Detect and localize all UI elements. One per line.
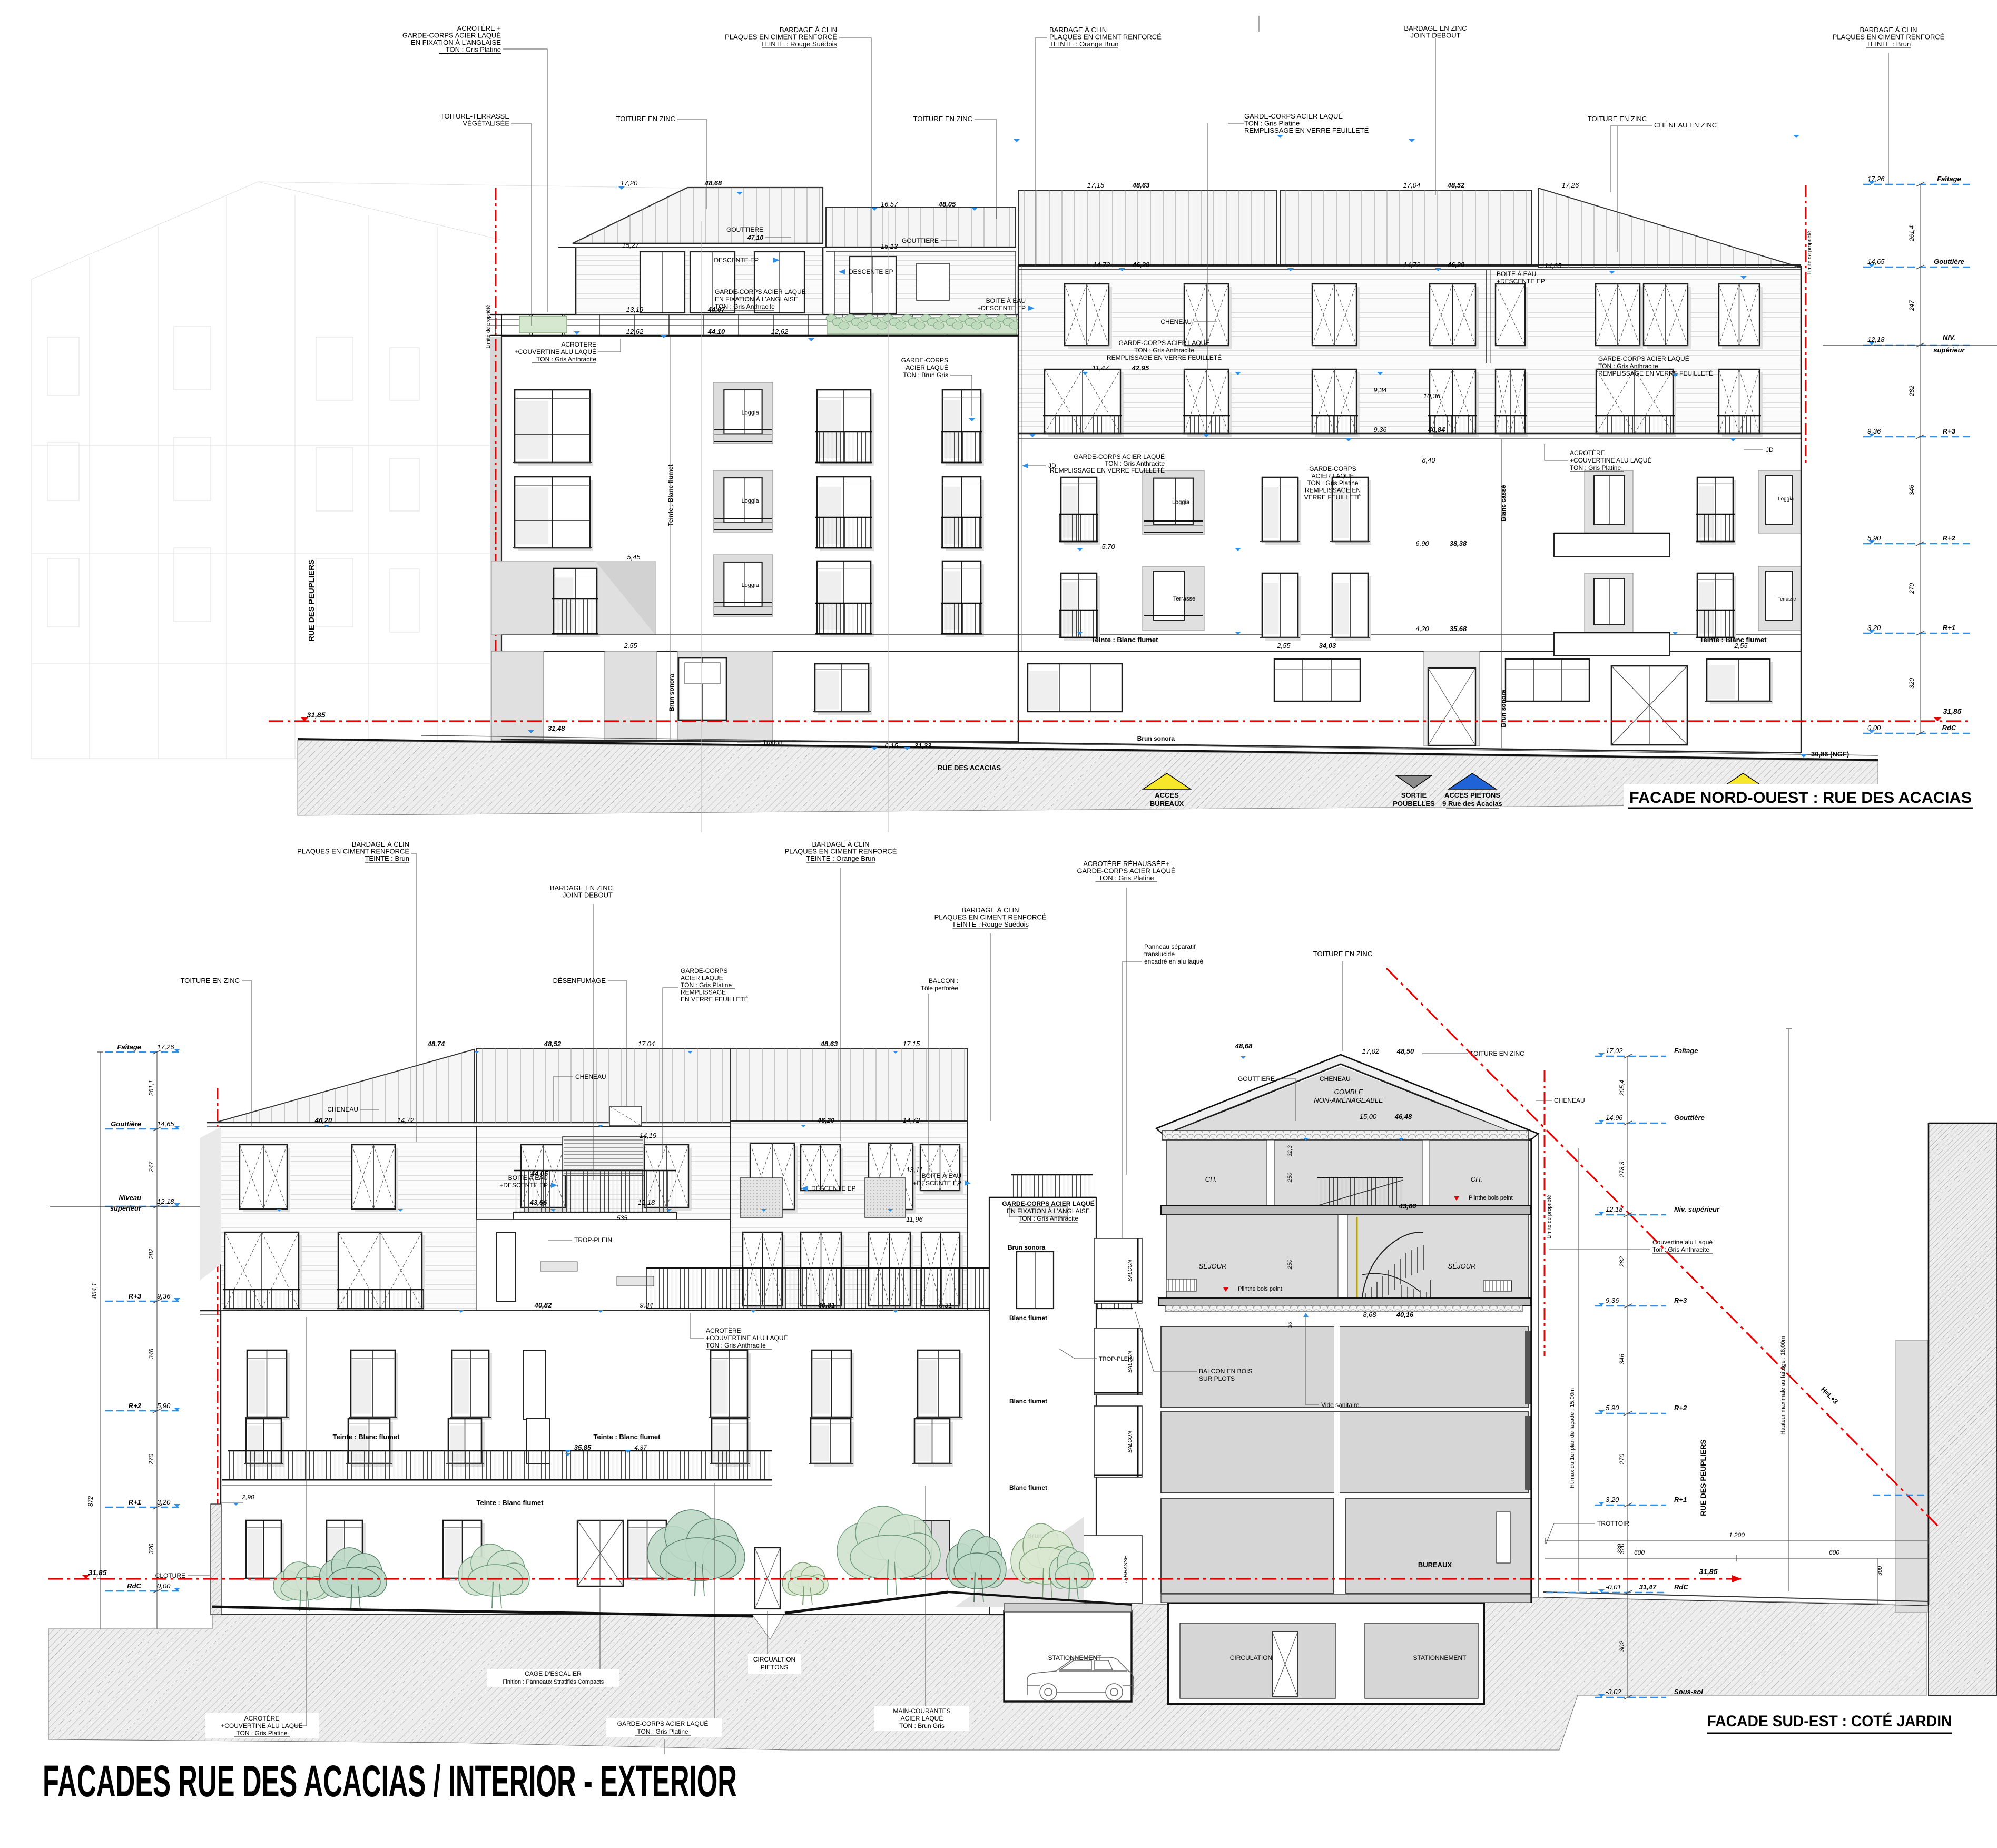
svg-text:247: 247 — [147, 1161, 155, 1173]
svg-text:R+2: R+2 — [129, 1402, 142, 1410]
svg-text:3,20: 3,20 — [1606, 1496, 1619, 1503]
svg-text:CH.: CH. — [1205, 1175, 1217, 1183]
svg-text:11,47: 11,47 — [1092, 364, 1109, 372]
svg-text:261,1: 261,1 — [147, 1080, 155, 1096]
svg-text:48,05: 48,05 — [938, 200, 956, 208]
svg-text:TOITURE EN ZINC: TOITURE EN ZINC — [1313, 950, 1372, 958]
svg-text:44,67: 44,67 — [707, 306, 725, 313]
svg-text:Blanc flumet: Blanc flumet — [1009, 1484, 1047, 1491]
svg-text:10,36: 10,36 — [1423, 392, 1441, 400]
svg-text:TON : Brun Gris: TON : Brun Gris — [899, 1722, 945, 1729]
svg-text:282: 282 — [1908, 386, 1915, 397]
svg-text:ACIER LAQUÉ: ACIER LAQUÉ — [901, 1714, 943, 1722]
svg-text:9,36: 9,36 — [157, 1292, 171, 1300]
svg-text:R+3: R+3 — [129, 1292, 142, 1300]
svg-text:R+3: R+3 — [1943, 427, 1956, 435]
svg-text:Faîtage: Faîtage — [1674, 1047, 1698, 1055]
svg-text:CAGE D'ESCALIER: CAGE D'ESCALIER — [525, 1670, 582, 1677]
svg-text:48,68: 48,68 — [1235, 1042, 1253, 1050]
svg-text:R+2: R+2 — [1943, 534, 1956, 542]
svg-text:12,18: 12,18 — [638, 1198, 655, 1206]
svg-text:R+2: R+2 — [1674, 1404, 1687, 1412]
svg-text:R+1: R+1 — [1943, 624, 1955, 632]
svg-text:DÉSENFUMAGE: DÉSENFUMAGE — [553, 977, 606, 985]
svg-text:31,47: 31,47 — [1639, 1583, 1657, 1591]
svg-text:TEINTE : Brun: TEINTE : Brun — [365, 854, 409, 862]
svg-text:REMPLISSAGE EN VERRE FEUILLETÉ: REMPLISSAGE EN VERRE FEUILLETÉ — [1107, 353, 1222, 361]
svg-text:Trottoir: Trottoir — [763, 739, 783, 746]
svg-text:Blanc cassé: Blanc cassé — [1500, 485, 1507, 522]
svg-text:BUREAUX: BUREAUX — [1150, 800, 1184, 808]
svg-text:-0,15: -0,15 — [882, 742, 898, 750]
svg-text:31,48: 31,48 — [548, 724, 565, 732]
svg-text:15,00: 15,00 — [1360, 1113, 1377, 1120]
svg-text:BALCON: BALCON — [1127, 1260, 1133, 1282]
svg-text:+DESCENTE EP: +DESCENTE EP — [977, 304, 1026, 312]
svg-text:R+1: R+1 — [1674, 1496, 1687, 1503]
svg-text:GARDE-CORPS ACIER LAQUÉ: GARDE-CORPS ACIER LAQUÉ — [617, 1719, 709, 1727]
svg-text:48,68: 48,68 — [704, 179, 722, 187]
svg-text:EN FIXATION À L’ANGLAISE: EN FIXATION À L’ANGLAISE — [1007, 1207, 1090, 1215]
svg-text:TEINTE : Rouge Suédois: TEINTE : Rouge Suédois — [760, 40, 837, 48]
svg-text:TON : Gris Platine: TON : Gris Platine — [446, 46, 501, 54]
svg-text:+DESCENTE EP: +DESCENTE EP — [913, 1179, 961, 1187]
svg-text:35,68: 35,68 — [1450, 625, 1467, 633]
svg-text:R+3: R+3 — [1674, 1296, 1687, 1304]
svg-text:302: 302 — [1618, 1641, 1626, 1652]
svg-text:GARDE-CORPS ACIER LAQUÉ: GARDE-CORPS ACIER LAQUÉ — [1598, 355, 1689, 362]
svg-text:TON : Gris Anthracite: TON : Gris Anthracite — [1134, 347, 1194, 354]
svg-text:GOUTTIERE: GOUTTIERE — [902, 237, 939, 244]
svg-text:Loggia: Loggia — [742, 582, 760, 588]
svg-text:TON : Gris Anthracite: TON : Gris Anthracite — [706, 1342, 766, 1349]
svg-text:Plinthe bois peint: Plinthe bois peint — [1238, 1286, 1282, 1292]
svg-text:32,3: 32,3 — [1287, 1145, 1293, 1156]
svg-text:600: 600 — [1829, 1549, 1839, 1556]
svg-text:5,90: 5,90 — [1606, 1404, 1619, 1412]
svg-text:CHENEAU: CHENEAU — [1160, 318, 1192, 326]
svg-text:GARDE-CORPS ACIER LAQUÉ: GARDE-CORPS ACIER LAQUÉ — [1119, 339, 1210, 347]
svg-text:CHENEAU: CHENEAU — [575, 1073, 606, 1080]
svg-text:GARDE-CORPS: GARDE-CORPS — [901, 357, 948, 364]
svg-text:Couvertine alu Laqué: Couvertine alu Laqué — [1652, 1238, 1713, 1246]
svg-text:TROTTOIR: TROTTOIR — [1597, 1520, 1629, 1527]
svg-text:17,20: 17,20 — [621, 179, 638, 187]
svg-text:Limite de propriété: Limite de propriété — [1807, 231, 1813, 274]
svg-text:31,33: 31,33 — [914, 742, 932, 750]
svg-text:4,20: 4,20 — [1415, 625, 1429, 633]
svg-text:535: 535 — [617, 1214, 627, 1222]
svg-text:CIRCULATION: CIRCULATION — [1230, 1654, 1272, 1662]
svg-text:46,48: 46,48 — [1394, 1113, 1412, 1120]
svg-text:278,3: 278,3 — [1618, 1162, 1626, 1178]
svg-text:270: 270 — [147, 1454, 155, 1465]
svg-text:Teinte : Blanc flumet: Teinte : Blanc flumet — [1700, 636, 1767, 644]
svg-text:Teinte : Blanc flumet: Teinte : Blanc flumet — [1091, 636, 1159, 644]
svg-text:36: 36 — [1287, 1322, 1293, 1328]
svg-text:46,20: 46,20 — [1447, 261, 1465, 269]
svg-text:BOITE À EAU: BOITE À EAU — [1497, 270, 1536, 278]
svg-text:Loggia: Loggia — [742, 498, 760, 504]
svg-text:320: 320 — [147, 1544, 155, 1554]
svg-text:Limite de propriété: Limite de propriété — [486, 304, 491, 348]
svg-text:38,38: 38,38 — [1450, 539, 1467, 547]
svg-text:STATIONNEMENT: STATIONNEMENT — [1413, 1654, 1467, 1662]
svg-text:48,74: 48,74 — [427, 1040, 445, 1048]
svg-text:4,37: 4,37 — [634, 1444, 647, 1451]
svg-text:14,65: 14,65 — [1545, 262, 1562, 270]
svg-text:5,90: 5,90 — [1867, 534, 1881, 542]
svg-text:Finition : Panneaux Stratifiés: Finition : Panneaux Stratifiés Compacts — [503, 1679, 604, 1685]
svg-text:46,20: 46,20 — [1132, 261, 1150, 269]
svg-text:40,84: 40,84 — [1428, 426, 1445, 434]
svg-text:Teinte : Blanc flumet: Teinte : Blanc flumet — [333, 1433, 400, 1441]
svg-text:COMBLE: COMBLE — [1334, 1088, 1363, 1096]
svg-text:872: 872 — [87, 1496, 94, 1507]
svg-text:TON : Gris Platine: TON : Gris Platine — [236, 1729, 287, 1737]
svg-text:RUE DES ACACIAS: RUE DES ACACIAS — [938, 764, 1001, 772]
svg-text:SORTIE: SORTIE — [1401, 791, 1427, 799]
svg-text:Gouttière: Gouttière — [1934, 258, 1964, 266]
svg-text:Gouttière: Gouttière — [111, 1120, 141, 1128]
svg-text:35,85: 35,85 — [574, 1443, 592, 1451]
svg-text:VÉGÉTALISÉE: VÉGÉTALISÉE — [463, 120, 509, 127]
svg-text:FACADES RUE DES ACACIAS / INTE: FACADES RUE DES ACACIAS / INTERIOR - EXT… — [43, 1756, 737, 1806]
svg-text:Teinte : Blanc flumet: Teinte : Blanc flumet — [594, 1433, 661, 1441]
svg-text:5,45: 5,45 — [627, 553, 641, 561]
svg-text:REMPLISSAGE EN VERRE FEUILLETÉ: REMPLISSAGE EN VERRE FEUILLETÉ — [1244, 126, 1369, 134]
svg-text:TEINTE : Orange Brun: TEINTE : Orange Brun — [1049, 40, 1119, 48]
svg-text:17,04: 17,04 — [1403, 181, 1421, 189]
svg-text:NON-AMÉNAGEABLE: NON-AMÉNAGEABLE — [1314, 1096, 1383, 1104]
svg-text:TOITURE EN ZINC: TOITURE EN ZINC — [616, 115, 675, 123]
svg-text:2,90: 2,90 — [241, 1493, 254, 1501]
svg-text:-3,02: -3,02 — [1606, 1688, 1621, 1696]
svg-text:JD: JD — [1048, 462, 1056, 469]
svg-text:supérieur: supérieur — [110, 1204, 142, 1212]
svg-text:TEINTE : Orange Brun: TEINTE : Orange Brun — [806, 854, 875, 862]
svg-text:2,55: 2,55 — [1734, 642, 1748, 650]
svg-text:Loggia: Loggia — [1172, 499, 1190, 505]
svg-text:TON : Gris Anthracite: TON : Gris Anthracite — [1018, 1215, 1078, 1222]
svg-text:2,55: 2,55 — [1276, 642, 1291, 650]
svg-text:320: 320 — [1617, 1544, 1623, 1554]
svg-text:Ton : Gris Anthracite: Ton : Gris Anthracite — [1652, 1246, 1709, 1253]
svg-text:Teinte : Blanc flumet: Teinte : Blanc flumet — [477, 1499, 544, 1507]
svg-text:ACROTERE: ACROTERE — [561, 341, 596, 348]
svg-text:BOITE À EAU: BOITE À EAU — [922, 1172, 961, 1179]
svg-text:17,15: 17,15 — [903, 1040, 920, 1048]
svg-text:12,18: 12,18 — [1867, 336, 1885, 343]
svg-text:GOUTTIERE: GOUTTIERE — [726, 226, 763, 233]
svg-text:CHENEAU: CHENEAU — [327, 1106, 358, 1113]
svg-text:encadré en alu laqué: encadré en alu laqué — [1144, 958, 1203, 965]
svg-text:Gouttière: Gouttière — [1674, 1114, 1705, 1122]
svg-text:600: 600 — [1634, 1549, 1645, 1556]
svg-text:BALCON: BALCON — [1127, 1431, 1133, 1453]
svg-text:JD: JD — [1766, 446, 1774, 454]
svg-text:Vide sanitaire: Vide sanitaire — [1321, 1401, 1360, 1409]
svg-text:346: 346 — [1618, 1354, 1626, 1364]
svg-text:Niveau: Niveau — [119, 1194, 141, 1202]
svg-text:Brun sonora: Brun sonora — [1500, 690, 1507, 728]
svg-text:CIRCUALTION: CIRCUALTION — [753, 1656, 795, 1663]
svg-text:Blanc flumet: Blanc flumet — [1009, 1398, 1047, 1405]
svg-text:250: 250 — [1287, 1172, 1293, 1183]
svg-text:14,96: 14,96 — [1606, 1114, 1623, 1122]
svg-text:Terrasse: Terrasse — [1173, 596, 1195, 602]
svg-text:TON : Gris Platine: TON : Gris Platine — [637, 1728, 688, 1735]
svg-text:DESCENTE EP: DESCENTE EP — [811, 1185, 856, 1192]
svg-text:Limite de propriété: Limite de propriété — [1547, 1195, 1552, 1238]
svg-text:POUBELLES: POUBELLES — [1393, 800, 1435, 808]
svg-text:TON : Gris Anthracite: TON : Gris Anthracite — [1598, 362, 1658, 370]
svg-text:40,82: 40,82 — [534, 1301, 552, 1309]
svg-text:DESCENTE EP: DESCENTE EP — [849, 268, 893, 276]
svg-text:+COUVERTINE ALU LAQUÉ: +COUVERTINE ALU LAQUÉ — [1570, 456, 1652, 464]
svg-text:13,11: 13,11 — [906, 1166, 923, 1174]
svg-text:Hauteur maximale au faîtage :: Hauteur maximale au faîtage : 18,00m — [1780, 1336, 1786, 1434]
svg-text:12,62: 12,62 — [626, 328, 644, 336]
svg-text:3,20: 3,20 — [157, 1498, 171, 1506]
svg-text:GARDE-CORPS ACIER LAQUÉ: GARDE-CORPS ACIER LAQUÉ — [715, 288, 806, 296]
svg-text:9 Rue des Acacias: 9 Rue des Acacias — [1442, 800, 1502, 808]
svg-text:Brun sonora: Brun sonora — [668, 674, 675, 712]
svg-text:40,81: 40,81 — [818, 1301, 835, 1309]
svg-text:RdC: RdC — [1942, 724, 1956, 732]
svg-text:ACIER LAQUÉ: ACIER LAQUÉ — [681, 974, 723, 982]
svg-text:17,26: 17,26 — [1562, 181, 1579, 189]
svg-text:Plinthe bois peint: Plinthe bois peint — [1469, 1195, 1513, 1201]
svg-text:31,85: 31,85 — [307, 711, 325, 719]
svg-text:31,85: 31,85 — [1699, 1567, 1717, 1576]
svg-text:JOINT DEBOUT: JOINT DEBOUT — [563, 891, 613, 899]
svg-text:42,95: 42,95 — [1132, 364, 1149, 372]
svg-text:34,03: 34,03 — [1319, 642, 1336, 650]
svg-text:46,20: 46,20 — [817, 1116, 835, 1124]
svg-text:14,65: 14,65 — [1867, 258, 1885, 266]
svg-text:3,20: 3,20 — [1867, 624, 1881, 632]
svg-text:14,72: 14,72 — [397, 1116, 415, 1124]
svg-text:Sous-sol: Sous-sol — [1674, 1688, 1703, 1696]
svg-text:12,62: 12,62 — [771, 328, 789, 336]
svg-text:supérieur: supérieur — [1933, 346, 1965, 354]
svg-text:FACADE NORD-OUEST : RUE DES AC: FACADE NORD-OUEST : RUE DES ACACIAS — [1629, 789, 1972, 807]
svg-text:14,65: 14,65 — [157, 1120, 174, 1128]
svg-text:ACROTÈRE: ACROTÈRE — [244, 1714, 280, 1722]
svg-text:320: 320 — [1908, 678, 1915, 689]
svg-text:MAIN-COURANTES: MAIN-COURANTES — [893, 1707, 950, 1715]
svg-text:15,27: 15,27 — [622, 241, 640, 249]
svg-text:EN FIXATION À L’ANGLAISE: EN FIXATION À L’ANGLAISE — [715, 295, 798, 303]
svg-text:TON : Gris Platine: TON : Gris Platine — [1570, 464, 1621, 471]
svg-text:REMPLISSAGE EN: REMPLISSAGE EN — [1305, 487, 1361, 494]
svg-text:TON : Gris Anthracite: TON : Gris Anthracite — [1105, 460, 1165, 467]
svg-text:282: 282 — [1618, 1256, 1626, 1267]
svg-text:9,36: 9,36 — [1606, 1296, 1619, 1304]
svg-text:translucide: translucide — [1144, 950, 1175, 958]
svg-text:FACADE SUD-EST : COTÉ JARDIN: FACADE SUD-EST : COTÉ JARDIN — [1707, 1712, 1952, 1730]
svg-text:CHENEAU: CHENEAU — [1320, 1075, 1351, 1083]
svg-text:12,18: 12,18 — [1606, 1205, 1623, 1213]
svg-text:TEINTE : Brun: TEINTE : Brun — [1866, 40, 1911, 48]
svg-text:48,63: 48,63 — [820, 1040, 838, 1048]
svg-text:ACIER LAQUÉ: ACIER LAQUÉ — [1312, 472, 1354, 480]
svg-text:Faîtage: Faîtage — [1937, 175, 1961, 183]
svg-text:+COUVERTINE ALU LAQUÉ: +COUVERTINE ALU LAQUÉ — [515, 348, 597, 356]
svg-text:GARDE-CORPS: GARDE-CORPS — [681, 967, 727, 975]
svg-text:44,05: 44,05 — [530, 1169, 548, 1177]
svg-text:REMPLISSAGE EN VERRE FEUILLETÉ: REMPLISSAGE EN VERRE FEUILLETÉ — [1598, 369, 1713, 377]
svg-text:GOUTTIERE: GOUTTIERE — [1238, 1075, 1275, 1083]
svg-text:TERRASSE: TERRASSE — [1123, 1556, 1129, 1584]
svg-text:9,36: 9,36 — [1373, 426, 1387, 434]
svg-text:5,70: 5,70 — [1101, 543, 1115, 551]
svg-text:TOITURE EN ZINC: TOITURE EN ZINC — [1588, 115, 1647, 123]
svg-text:CHÉNEAU EN ZINC: CHÉNEAU EN ZINC — [1654, 121, 1717, 129]
svg-text:BUREAUX: BUREAUX — [1418, 1561, 1452, 1569]
svg-text:8,68: 8,68 — [1363, 1311, 1376, 1319]
svg-text:9,31: 9,31 — [939, 1301, 952, 1309]
svg-text:ACIER LAQUÉ: ACIER LAQUÉ — [906, 363, 948, 371]
svg-text:TOITURE EN ZINC: TOITURE EN ZINC — [913, 115, 972, 123]
svg-text:+DESCENTE EP: +DESCENTE EP — [499, 1182, 548, 1189]
svg-text:TEINTE : Rouge Suédois: TEINTE : Rouge Suédois — [952, 920, 1029, 928]
svg-text:Terrasse: Terrasse — [1778, 596, 1796, 602]
svg-text:Brun sonora: Brun sonora — [1137, 735, 1175, 742]
svg-text:TON : Brun Gris: TON : Brun Gris — [903, 371, 948, 379]
svg-text:Teinte : Blanc flumet: Teinte : Blanc flumet — [667, 464, 674, 526]
svg-text:16,57: 16,57 — [881, 200, 898, 208]
svg-text:REMPLISSAGE: REMPLISSAGE — [681, 989, 726, 996]
svg-text:SÉJOUR: SÉJOUR — [1199, 1262, 1227, 1270]
svg-text:+COUVERTINE ALU LAQUÉ: +COUVERTINE ALU LAQUÉ — [221, 1722, 303, 1729]
svg-text:Loggia: Loggia — [1778, 496, 1794, 502]
svg-text:0,00: 0,00 — [1867, 724, 1881, 732]
svg-text:205,4: 205,4 — [1618, 1080, 1626, 1096]
svg-text:Tôle perforée: Tôle perforée — [921, 985, 959, 992]
svg-text:46,20: 46,20 — [314, 1116, 332, 1124]
svg-text:43,66: 43,66 — [529, 1198, 547, 1206]
svg-text:RdC: RdC — [1674, 1583, 1688, 1591]
svg-text:31,85: 31,85 — [88, 1568, 106, 1577]
svg-text:48,50: 48,50 — [1396, 1047, 1414, 1055]
svg-text:Blanc flumet: Blanc flumet — [1009, 1314, 1047, 1322]
svg-text:RdC: RdC — [127, 1582, 141, 1590]
svg-text:DESCENTE EP: DESCENTE EP — [714, 257, 759, 264]
svg-text:1 200: 1 200 — [1729, 1531, 1745, 1539]
svg-text:48,52: 48,52 — [1447, 181, 1465, 189]
svg-text:Ht max du 1er plan de façade :: Ht max du 1er plan de façade : 15,00m — [1569, 1388, 1576, 1488]
svg-text:8,40: 8,40 — [1422, 456, 1435, 464]
svg-text:PIETONS: PIETONS — [761, 1664, 788, 1671]
svg-text:GARDE-CORPS: GARDE-CORPS — [1309, 465, 1356, 473]
svg-text:14,72: 14,72 — [1403, 261, 1421, 269]
svg-text:BALCON EN BOIS: BALCON EN BOIS — [1199, 1368, 1252, 1375]
svg-text:9,34: 9,34 — [640, 1301, 653, 1309]
svg-text:17,02: 17,02 — [1606, 1047, 1623, 1055]
svg-text:14,19: 14,19 — [640, 1132, 657, 1139]
svg-text:5,90: 5,90 — [157, 1402, 171, 1410]
svg-text:EN VERRE FEUILLETÉ: EN VERRE FEUILLETÉ — [681, 995, 749, 1003]
svg-text:40,16: 40,16 — [1396, 1311, 1414, 1319]
svg-text:17,02: 17,02 — [1362, 1047, 1380, 1055]
svg-text:GARDE-CORPS ACIER LAQUÉ: GARDE-CORPS ACIER LAQUÉ — [1002, 1200, 1095, 1207]
svg-text:17,15: 17,15 — [1087, 181, 1105, 189]
svg-text:282: 282 — [147, 1249, 155, 1260]
svg-text:48,63: 48,63 — [1132, 181, 1150, 189]
svg-text:REMPLISSAGE EN VERRE FEUILLETÉ: REMPLISSAGE EN VERRE FEUILLETÉ — [1050, 466, 1165, 474]
svg-text:Faîtage: Faîtage — [117, 1043, 141, 1051]
svg-text:TOITURE EN ZINC: TOITURE EN ZINC — [1470, 1050, 1524, 1057]
svg-text:TOITURE EN ZINC: TOITURE EN ZINC — [181, 977, 240, 985]
svg-text:261,4: 261,4 — [1908, 225, 1915, 242]
svg-text:ACCES: ACCES — [1155, 791, 1179, 799]
svg-text:TROP-PLEIN: TROP-PLEIN — [574, 1236, 612, 1244]
svg-text:13,19: 13,19 — [626, 306, 644, 313]
svg-text:BALCON :: BALCON : — [929, 977, 958, 985]
svg-text:-0,01: -0,01 — [1606, 1583, 1621, 1591]
svg-text:+COUVERTINE ALU LAQUÉ: +COUVERTINE ALU LAQUÉ — [706, 1334, 788, 1342]
svg-text:12,18: 12,18 — [157, 1197, 174, 1205]
svg-text:31,85: 31,85 — [1943, 707, 1961, 715]
svg-text:Brun sonora: Brun sonora — [1008, 1244, 1046, 1251]
svg-text:14,72: 14,72 — [1093, 261, 1110, 269]
svg-text:TON : Gris Platine: TON : Gris Platine — [1307, 479, 1358, 487]
svg-text:TON : Gris Platine: TON : Gris Platine — [681, 981, 732, 989]
svg-text:30,86 (NGF): 30,86 (NGF) — [1811, 750, 1849, 758]
svg-text:SÉJOUR: SÉJOUR — [1448, 1262, 1476, 1270]
svg-text:ACROTÈRE: ACROTÈRE — [706, 1326, 741, 1334]
svg-text:270: 270 — [1908, 583, 1915, 594]
svg-text:Panneau séparatif: Panneau séparatif — [1144, 943, 1196, 950]
svg-text:BOITE À EAU: BOITE À EAU — [986, 297, 1026, 304]
svg-text:17,04: 17,04 — [638, 1040, 655, 1048]
svg-text:9,36: 9,36 — [1867, 427, 1881, 435]
svg-text:SUR PLOTS: SUR PLOTS — [1199, 1375, 1235, 1382]
svg-text:CH.: CH. — [1471, 1175, 1482, 1183]
svg-text:TON : Gris Anthracite: TON : Gris Anthracite — [536, 356, 596, 363]
svg-text:+DESCENTE EP: +DESCENTE EP — [1497, 278, 1545, 285]
svg-text:17,26: 17,26 — [157, 1043, 174, 1051]
svg-text:GARDE-CORPS ACIER LAQUÉ: GARDE-CORPS ACIER LAQUÉ — [1074, 453, 1165, 460]
svg-text:15,13: 15,13 — [881, 242, 898, 250]
svg-text:48,52: 48,52 — [544, 1040, 562, 1048]
svg-text:9,34: 9,34 — [1373, 386, 1386, 394]
svg-text:43,66: 43,66 — [1399, 1202, 1416, 1210]
svg-text:ACCES PIETONS: ACCES PIETONS — [1444, 791, 1500, 799]
svg-text:17,26: 17,26 — [1867, 175, 1885, 183]
svg-text:R+1: R+1 — [129, 1498, 141, 1506]
svg-text:44,10: 44,10 — [707, 328, 725, 336]
svg-text:RUE DES PEUPLIERS: RUE DES PEUPLIERS — [1699, 1439, 1707, 1516]
svg-text:TON : Gris Platine: TON : Gris Platine — [1098, 874, 1154, 882]
svg-text:270: 270 — [1618, 1454, 1626, 1465]
svg-text:2,55: 2,55 — [623, 642, 637, 650]
svg-text:250: 250 — [1287, 1259, 1293, 1270]
svg-text:11,96: 11,96 — [906, 1215, 923, 1223]
svg-text:NIV.: NIV. — [1943, 333, 1955, 341]
svg-text:346: 346 — [1908, 485, 1915, 495]
svg-text:ACROTÈRE: ACROTÈRE — [1570, 449, 1605, 457]
svg-text:Niv. supérieur: Niv. supérieur — [1674, 1205, 1720, 1213]
svg-text:346: 346 — [147, 1349, 155, 1359]
svg-text:CHENEAU: CHENEAU — [1554, 1097, 1585, 1104]
svg-text:0,00: 0,00 — [157, 1582, 171, 1590]
svg-text:854,1: 854,1 — [91, 1283, 98, 1299]
svg-text:TROP-PLEIN: TROP-PLEIN — [1099, 1356, 1134, 1362]
svg-text:47,10: 47,10 — [747, 234, 763, 241]
